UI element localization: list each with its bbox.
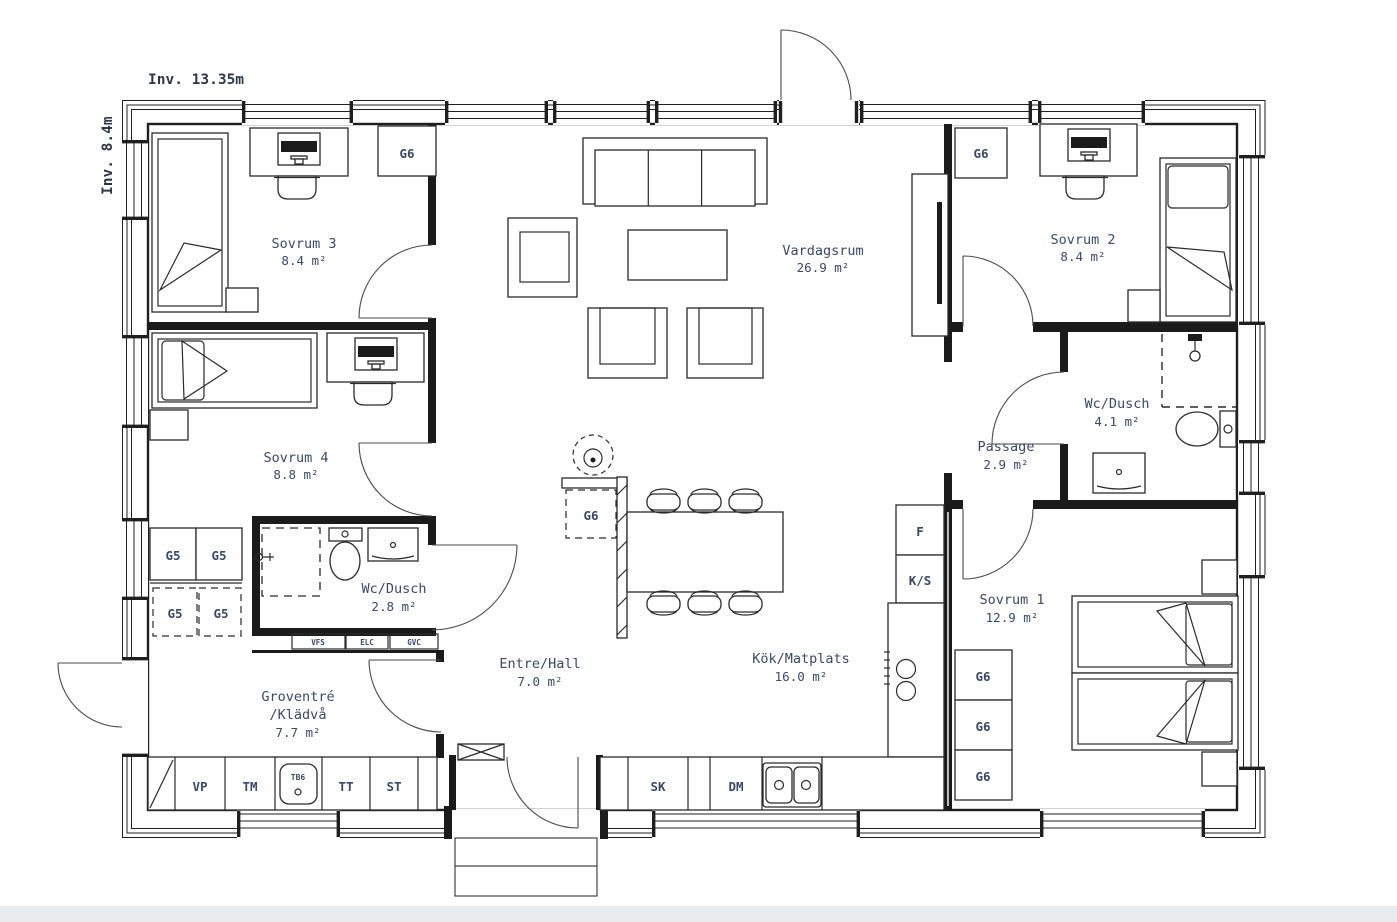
room-area: 26.9 m² xyxy=(797,260,850,275)
room-name: Sovrum 1 xyxy=(979,592,1044,608)
room-name: Groventré xyxy=(261,689,334,705)
label-g5: G5 xyxy=(211,548,226,563)
dining-table-icon xyxy=(627,489,783,615)
room-area: 2.9 m² xyxy=(983,457,1028,472)
bed-icon xyxy=(1072,673,1238,750)
room-name: Passage xyxy=(978,439,1035,455)
label-vfs: VFS xyxy=(311,638,325,647)
room-area: 2.8 m² xyxy=(371,599,416,614)
counter xyxy=(888,603,944,757)
label-g6: G6 xyxy=(973,146,988,161)
room-area: 8.4 m² xyxy=(1060,249,1105,264)
room-area: 8.4 m² xyxy=(281,253,326,268)
room-name: Wc/Dusch xyxy=(361,581,426,597)
bottom-bar xyxy=(0,906,1397,922)
laundry-sink-tb6 xyxy=(280,764,317,804)
desk-icon xyxy=(1040,124,1137,199)
room-label-passage: Passage 2.9 m² xyxy=(978,439,1035,472)
room-area: 7.7 m² xyxy=(275,725,320,740)
sink-icon xyxy=(368,528,418,561)
nightstand-icon xyxy=(150,410,188,440)
hatched-panel xyxy=(617,477,627,638)
room-label-sovrum2: Sovrum 2 8.4 m² xyxy=(1050,232,1115,264)
label-vp: VP xyxy=(192,779,207,794)
room-label-sovrum4: Sovrum 4 8.8 m² xyxy=(263,450,328,482)
nightstand-icon xyxy=(226,288,258,312)
armchair-icon xyxy=(508,218,577,297)
nightstand-icon xyxy=(1202,560,1237,594)
hall-furniture xyxy=(562,435,783,638)
label-tm: TM xyxy=(242,779,257,794)
room-name: Wc/Dusch xyxy=(1084,396,1149,412)
shower-area xyxy=(1162,334,1237,407)
label-g6: G6 xyxy=(975,719,990,734)
sovrum3-furniture xyxy=(152,126,436,312)
room-area: 4.1 m² xyxy=(1094,414,1139,429)
label-g6: G6 xyxy=(975,769,990,784)
room-name: Kök/Matplats xyxy=(752,651,850,667)
label-g6: G6 xyxy=(399,146,414,161)
label-gvc: GVC xyxy=(407,638,421,647)
double-sink-icon xyxy=(763,763,821,807)
room-name: Sovrum 2 xyxy=(1050,232,1115,248)
room-label-wc-dusch-2: Wc/Dusch 2.8 m² xyxy=(361,581,426,614)
sovrum4-furniture xyxy=(150,333,424,440)
tv-bench-icon xyxy=(912,174,948,336)
label-fridge: F xyxy=(916,524,924,539)
sofa-icon xyxy=(583,138,767,206)
sink-icon xyxy=(1093,453,1145,493)
label-sk: SK xyxy=(650,779,666,794)
nightstand-icon xyxy=(1202,752,1237,786)
label-elc: ELC xyxy=(360,638,374,647)
room-area: 8.8 m² xyxy=(273,467,318,482)
label-g5: G5 xyxy=(167,606,182,621)
bed-icon xyxy=(1072,596,1238,673)
label-g5: G5 xyxy=(165,548,180,563)
entry-porch xyxy=(455,838,597,896)
label-g5: G5 xyxy=(213,606,228,621)
sovrum2-furniture xyxy=(955,124,1236,322)
desk-icon xyxy=(327,333,424,405)
room-label-wc-dusch-4: Wc/Dusch 4.1 m² xyxy=(1084,396,1149,429)
room-name: Sovrum 4 xyxy=(263,450,328,466)
room-name: Vardagsrum xyxy=(782,243,863,259)
room-label-sovrum3: Sovrum 3 8.4 m² xyxy=(271,236,336,268)
shower-area xyxy=(262,528,320,596)
label-g6: G6 xyxy=(975,669,990,684)
lounge-chair-icon xyxy=(687,308,763,378)
room-name: Entre/Hall xyxy=(499,656,580,672)
label-st: ST xyxy=(386,779,401,794)
room-label-vardagsrum: Vardagsrum 26.9 m² xyxy=(782,243,863,275)
room-label-sovrum1: Sovrum 1 12.9 m² xyxy=(979,592,1044,625)
toilet-icon xyxy=(1176,411,1236,447)
ceiling-lamp-icon xyxy=(573,435,613,475)
room-area: 7.0 m² xyxy=(517,674,562,689)
coffee-table-icon xyxy=(628,230,727,280)
vardagsrum-furniture xyxy=(508,138,948,378)
room-label-groventre: Groventré /Klädvå 7.7 m² xyxy=(261,689,334,740)
bed-icon xyxy=(1160,158,1236,322)
desk-icon xyxy=(250,128,348,199)
room-label-kok: Kök/Matplats 16.0 m² xyxy=(752,651,850,684)
room-label-entre: Entre/Hall 7.0 m² xyxy=(499,656,580,689)
room-area: 16.0 m² xyxy=(775,669,828,684)
shower-head-icon xyxy=(1188,334,1202,361)
nightstand-icon xyxy=(1128,290,1160,322)
floor-plan-page: Inv. 13.35m Inv. 8.4m Sovrum 3 8.4 m² So… xyxy=(0,0,1397,922)
lounge-chair-icon xyxy=(588,308,667,378)
dimension-width: Inv. 13.35m xyxy=(148,72,244,88)
room-area: 12.9 m² xyxy=(986,610,1039,625)
toilet-icon xyxy=(329,528,362,580)
floor-plan-canvas: Inv. 13.35m Inv. 8.4m Sovrum 3 8.4 m² So… xyxy=(0,0,1397,922)
label-dm: DM xyxy=(728,779,743,794)
label-freezer: K/S xyxy=(909,573,932,588)
label-g6: G6 xyxy=(583,508,598,523)
room-name: Sovrum 3 xyxy=(271,236,336,252)
bed-icon xyxy=(152,133,228,312)
bed-icon xyxy=(152,333,317,408)
label-tb6: TB6 xyxy=(291,773,306,782)
entry-sidelight-window xyxy=(458,744,504,760)
label-tt: TT xyxy=(338,779,353,794)
dimension-height: Inv. 8.4m xyxy=(100,116,116,195)
room-name: /Klädvå xyxy=(270,706,327,723)
